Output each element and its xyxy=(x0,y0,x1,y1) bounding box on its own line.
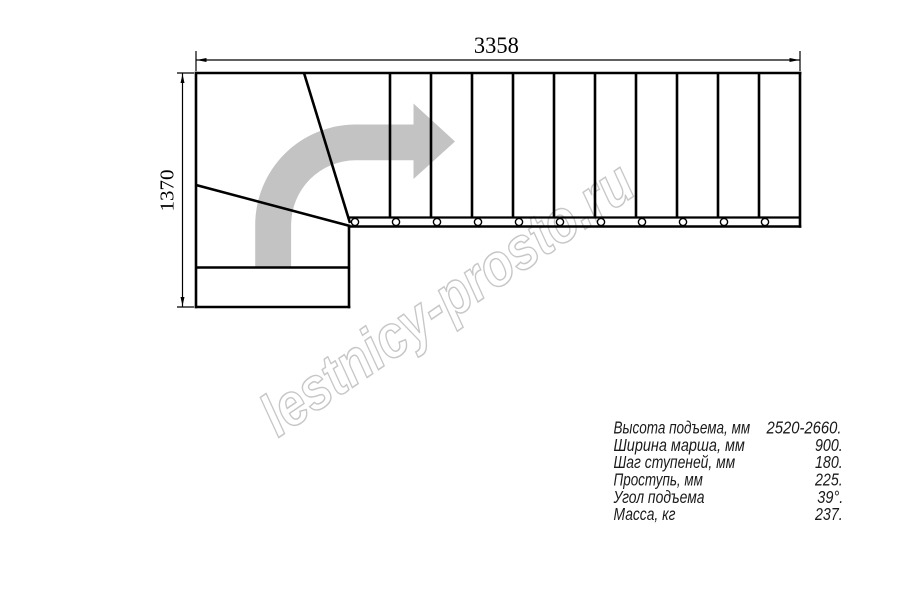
svg-text:Масса, кг: Масса, кг xyxy=(614,504,676,524)
svg-text:237.: 237. xyxy=(814,504,843,524)
svg-text:3358: 3358 xyxy=(474,33,519,58)
svg-text:1370: 1370 xyxy=(157,170,179,212)
